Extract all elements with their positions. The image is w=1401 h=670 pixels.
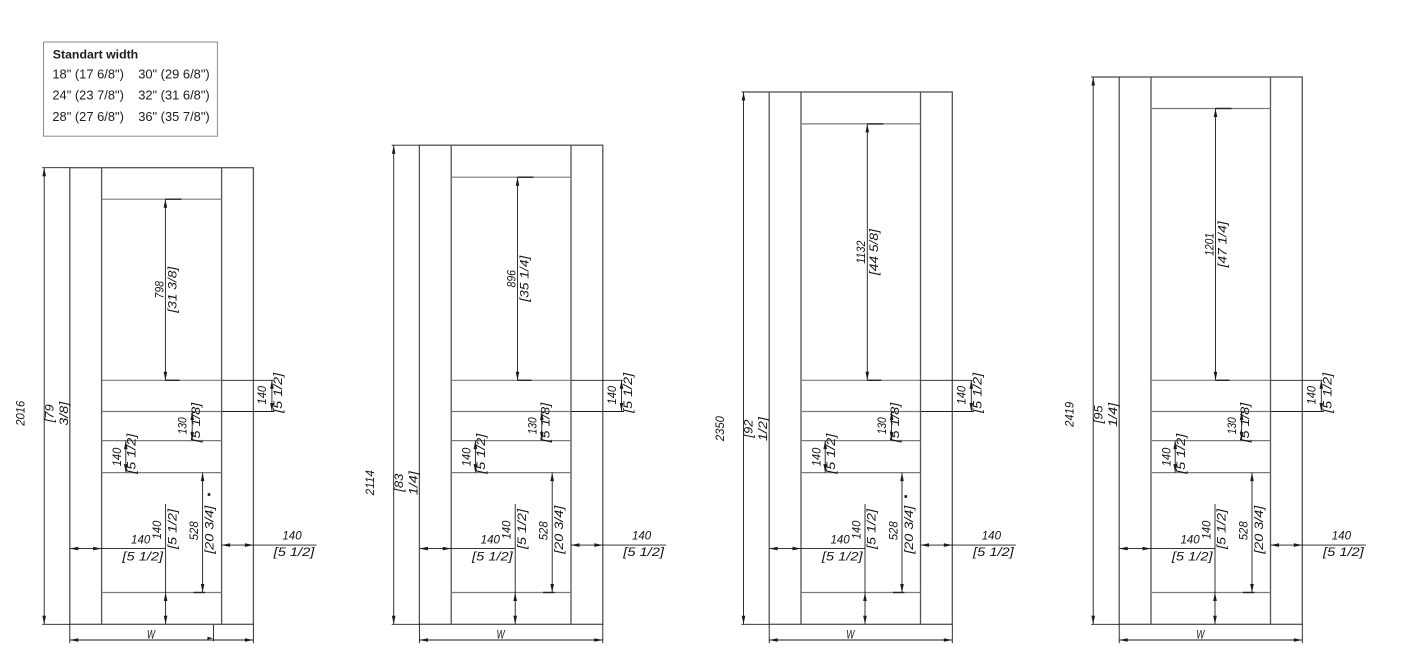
svg-text:[83: [83 (393, 473, 406, 493)
svg-text:30" (29 6/8"): 30" (29 6/8") (138, 66, 210, 81)
svg-text:[5 1/2]: [5 1/2] (272, 372, 285, 414)
svg-text:2350: 2350 (714, 416, 727, 442)
svg-text:[5 1/8]: [5 1/8] (889, 402, 902, 444)
svg-text:24" (23 7/8"): 24" (23 7/8") (52, 88, 124, 103)
svg-text:140: 140 (956, 385, 969, 404)
svg-text:[20 3/4]: [20 3/4] (204, 505, 217, 555)
svg-text:18" (17 6/8"): 18" (17 6/8") (52, 66, 124, 81)
svg-text:28" (27 6/8"): 28" (27 6/8") (52, 109, 124, 124)
svg-text:W: W (147, 629, 156, 642)
svg-text:140: 140 (461, 447, 474, 466)
svg-text:[95: [95 (1092, 405, 1105, 425)
svg-text:140: 140 (151, 520, 164, 539)
svg-text:[5 1/8]: [5 1/8] (1239, 402, 1252, 444)
svg-text:[5 1/2]: [5 1/2] (1322, 546, 1365, 559)
svg-text:1/4]: 1/4] (1107, 402, 1120, 427)
svg-text:2016: 2016 (15, 400, 28, 426)
svg-text:36" (35 7/8"): 36" (35 7/8") (138, 109, 210, 124)
svg-text:140: 140 (131, 534, 151, 547)
svg-text:140: 140 (501, 520, 514, 539)
svg-text:1/4]: 1/4] (407, 470, 420, 495)
svg-text:140: 140 (481, 534, 501, 547)
svg-text:[5 1/2]: [5 1/2] (166, 508, 179, 550)
svg-text:140: 140 (982, 530, 1002, 543)
svg-text:[35 1/4]: [35 1/4] (518, 255, 531, 303)
svg-text:2114: 2114 (364, 470, 377, 497)
svg-text:1/2]: 1/2] (757, 416, 770, 441)
svg-text:896: 896 (505, 270, 518, 288)
svg-text:[5 1/8]: [5 1/8] (190, 402, 203, 444)
svg-text:[5 1/2]: [5 1/2] (471, 550, 514, 563)
svg-text:140: 140 (1332, 530, 1352, 543)
svg-text:[5 1/2]: [5 1/2] (866, 508, 879, 550)
svg-text:W: W (846, 629, 855, 642)
svg-text:[47 1/4]: [47 1/4] (1216, 220, 1229, 268)
svg-text:140: 140 (606, 385, 619, 404)
svg-text:[20 3/4]: [20 3/4] (1253, 505, 1266, 555)
svg-text:[5 1/2]: [5 1/2] (972, 372, 985, 414)
svg-text:[5 1/8]: [5 1/8] (539, 402, 552, 444)
svg-text:[5 1/2]: [5 1/2] (1175, 433, 1188, 475)
svg-text:W: W (1196, 629, 1205, 642)
svg-text:32" (31 6/8"): 32" (31 6/8") (138, 88, 210, 103)
svg-text:140: 140 (850, 520, 863, 539)
svg-text:528: 528 (1237, 521, 1250, 541)
svg-text:130: 130 (177, 417, 190, 434)
svg-text:1201: 1201 (1203, 233, 1216, 256)
svg-text:130: 130 (526, 417, 539, 434)
svg-text:[5 1/2]: [5 1/2] (272, 546, 315, 559)
svg-text:[5 1/2]: [5 1/2] (622, 372, 635, 414)
svg-text:[5 1/2]: [5 1/2] (475, 433, 488, 475)
svg-text:3/8]: 3/8] (58, 401, 71, 426)
svg-text:[20 3/4]: [20 3/4] (553, 505, 566, 555)
svg-text:Standart width: Standart width (53, 48, 138, 62)
svg-text:140: 140 (810, 447, 823, 466)
svg-text:[5 1/2]: [5 1/2] (825, 433, 838, 475)
svg-text:[79: [79 (43, 404, 56, 424)
svg-text:[5 1/2]: [5 1/2] (1171, 550, 1214, 563)
svg-text:[5 1/2]: [5 1/2] (516, 508, 529, 550)
svg-text:[44 5/8]: [44 5/8] (868, 228, 881, 276)
svg-text:[5 1/2]: [5 1/2] (1216, 508, 1229, 550)
svg-text:140: 140 (830, 534, 850, 547)
svg-text:140: 140 (111, 447, 124, 466)
svg-text:798: 798 (153, 281, 166, 299)
svg-text:1132: 1132 (855, 240, 868, 264)
svg-text:[5 1/2]: [5 1/2] (622, 546, 665, 559)
svg-text:[92: [92 (743, 419, 756, 439)
svg-text:[5 1/2]: [5 1/2] (1322, 372, 1335, 414)
svg-text:[5 1/2]: [5 1/2] (821, 550, 864, 563)
svg-text:140: 140 (1160, 447, 1173, 466)
svg-text:130: 130 (1226, 417, 1239, 434)
svg-text:130: 130 (876, 417, 889, 434)
svg-text:140: 140 (632, 530, 652, 543)
svg-text:[5 1/2]: [5 1/2] (125, 433, 138, 475)
svg-text:2419: 2419 (1064, 401, 1077, 427)
svg-text:[5 1/2]: [5 1/2] (972, 546, 1015, 559)
svg-text:528: 528 (538, 521, 551, 541)
svg-text:140: 140 (1200, 520, 1213, 539)
svg-text:[31 3/8]: [31 3/8] (166, 266, 179, 314)
svg-text:140: 140 (256, 385, 269, 404)
svg-text:140: 140 (282, 530, 302, 543)
svg-text:140: 140 (1306, 385, 1319, 404)
svg-text:[5 1/2]: [5 1/2] (121, 550, 164, 563)
svg-text:[20 3/4]: [20 3/4] (903, 505, 916, 555)
svg-text:W: W (497, 629, 506, 642)
svg-text:528: 528 (188, 521, 201, 541)
svg-text:140: 140 (1180, 534, 1200, 547)
svg-text:528: 528 (887, 521, 900, 541)
